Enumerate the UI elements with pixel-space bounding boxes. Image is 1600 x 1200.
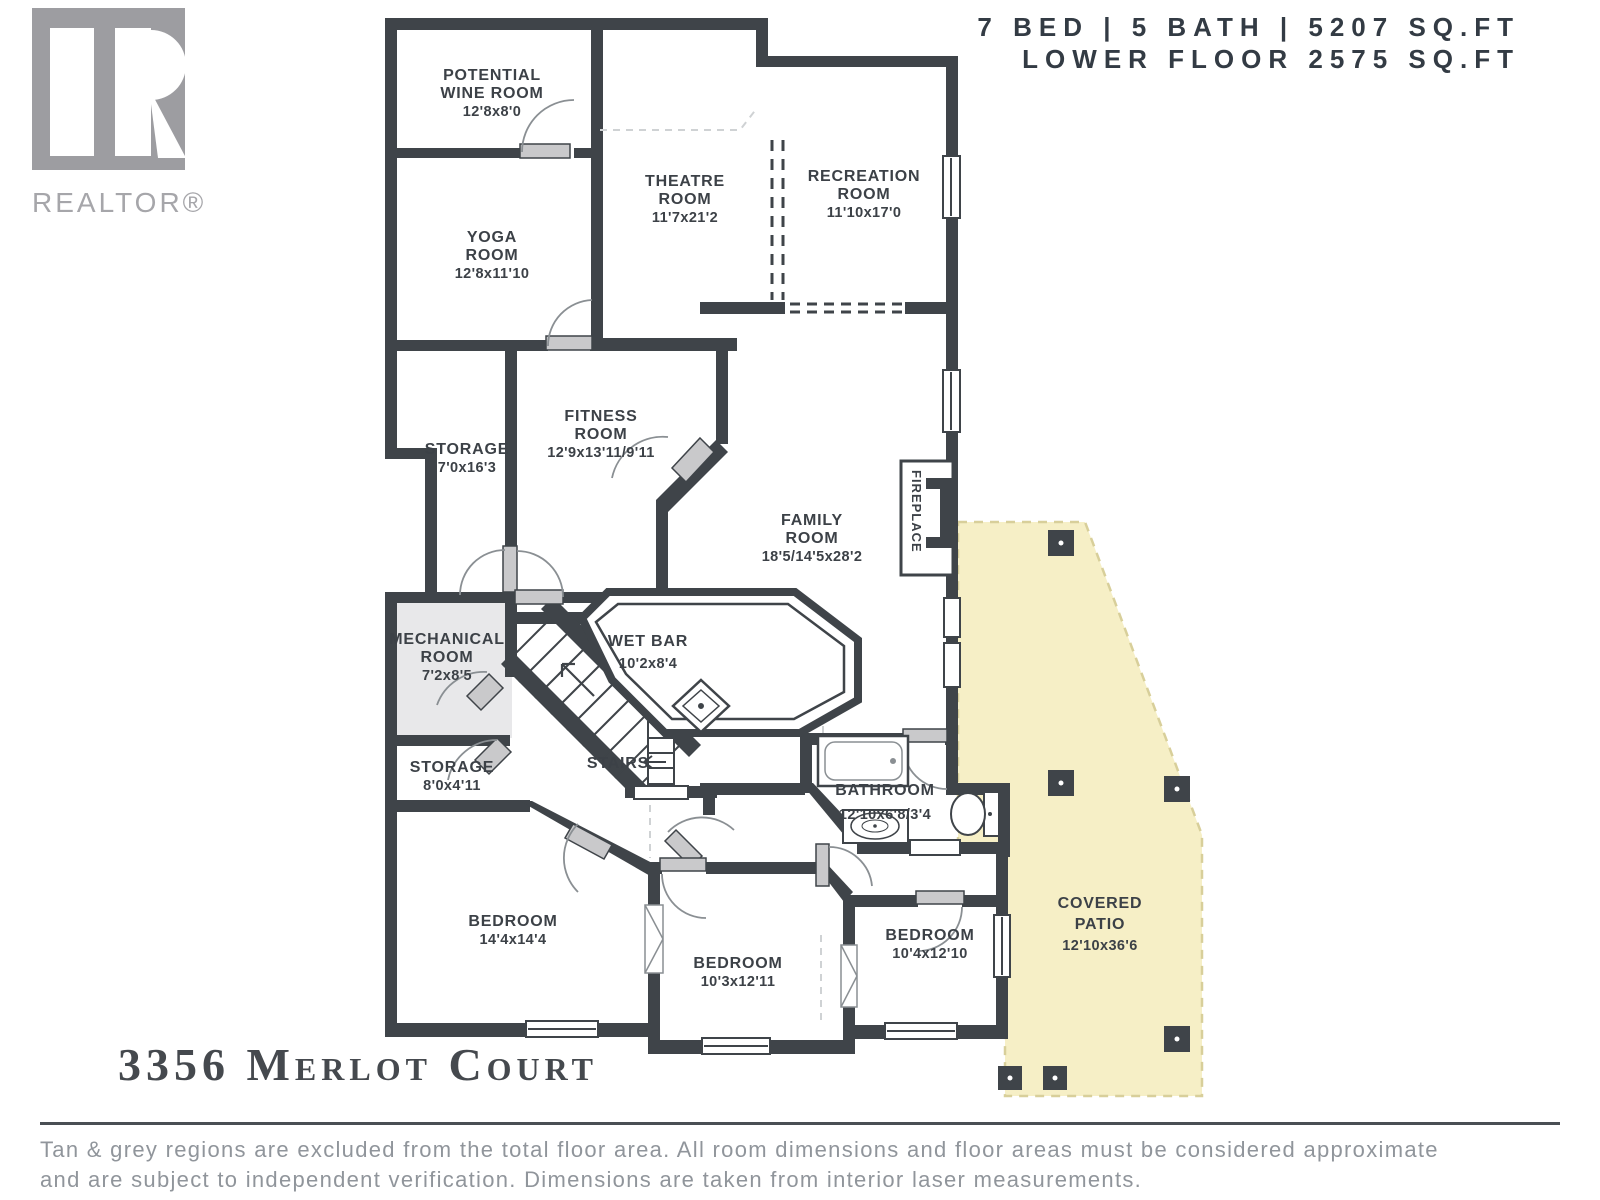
svg-text:11'7x21'2: 11'7x21'2 xyxy=(652,210,718,226)
svg-text:ROOM: ROOM xyxy=(575,426,628,443)
svg-text:12'10x36'6: 12'10x36'6 xyxy=(1062,938,1137,954)
svg-text:8'0x4'11: 8'0x4'11 xyxy=(423,778,481,794)
svg-text:12'10x6'8/3'4: 12'10x6'8/3'4 xyxy=(839,807,931,823)
room-label-bedroom-middle: BEDROOM 10'3x12'11 xyxy=(693,955,782,990)
svg-text:RECREATION: RECREATION xyxy=(808,168,921,185)
svg-text:12'8x11'10: 12'8x11'10 xyxy=(455,266,530,282)
property-address: 3356 Merlot Court xyxy=(118,1038,598,1091)
svg-text:ROOM: ROOM xyxy=(838,186,891,203)
svg-text:12'9x13'11/9'11: 12'9x13'11/9'11 xyxy=(547,445,654,461)
room-label-fitness-room: FITNESS ROOM 12'9x13'11/9'11 xyxy=(547,408,654,461)
svg-text:WET BAR: WET BAR xyxy=(608,633,688,650)
fireplace: FIREPLACE xyxy=(901,461,953,575)
svg-text:STORAGE: STORAGE xyxy=(425,441,509,458)
ceiling-dashed-lines xyxy=(600,108,823,1023)
svg-text:ROOM: ROOM xyxy=(466,247,519,264)
bathtub-icon xyxy=(818,736,908,786)
room-label-family-room: FAMILY ROOM 18'5/14'5x28'2 xyxy=(762,512,863,565)
disclaimer: Tan & grey regions are excluded from the… xyxy=(40,1122,1560,1194)
room-label-bathroom: BATHROOM 12'10x6'8/3'4 xyxy=(835,782,934,823)
svg-text:BEDROOM: BEDROOM xyxy=(885,927,974,944)
room-label-recreation-room: RECREATION ROOM 11'10x17'0 xyxy=(808,168,921,221)
svg-text:COVERED: COVERED xyxy=(1058,895,1143,912)
svg-text:MECHANICAL: MECHANICAL xyxy=(389,631,505,648)
toilet-icon xyxy=(951,792,999,836)
svg-text:BEDROOM: BEDROOM xyxy=(693,955,782,972)
svg-text:WINE ROOM: WINE ROOM xyxy=(440,85,543,102)
svg-text:10'4x12'10: 10'4x12'10 xyxy=(892,946,967,962)
room-label-potential-wine-room: POTENTIAL WINE ROOM 12'8x8'0 xyxy=(440,67,543,120)
fireplace-label: FIREPLACE xyxy=(909,470,924,553)
room-label-theatre-room: THEATRE ROOM 11'7x21'2 xyxy=(645,173,725,226)
svg-text:ROOM: ROOM xyxy=(659,191,712,208)
svg-text:BATHROOM: BATHROOM xyxy=(835,782,934,799)
svg-text:12'8x8'0: 12'8x8'0 xyxy=(463,104,521,120)
floor-plan: FIREPLACE POTENTIAL WINE ROOM 12'8x8'0 Y… xyxy=(0,0,1600,1200)
svg-text:POTENTIAL: POTENTIAL xyxy=(443,67,541,84)
svg-text:PATIO: PATIO xyxy=(1075,916,1126,933)
svg-text:11'10x17'0: 11'10x17'0 xyxy=(827,205,902,221)
room-label-storage-lower: STORAGE 8'0x4'11 xyxy=(410,759,494,794)
svg-text:STORAGE: STORAGE xyxy=(410,759,494,776)
stairs-label: STAIRS xyxy=(587,755,649,772)
svg-text:14'4x14'4: 14'4x14'4 xyxy=(480,932,547,948)
svg-text:THEATRE: THEATRE xyxy=(645,173,725,190)
svg-text:FAMILY: FAMILY xyxy=(781,512,843,529)
room-label-bedroom-right: BEDROOM 10'4x12'10 xyxy=(885,927,974,962)
dashed-openings xyxy=(772,140,905,312)
room-label-storage-upper: STORAGE 7'0x16'3 xyxy=(425,441,509,476)
svg-text:FITNESS: FITNESS xyxy=(564,408,637,425)
svg-text:7'0x16'3: 7'0x16'3 xyxy=(438,460,496,476)
svg-text:10'3x12'11: 10'3x12'11 xyxy=(701,974,776,990)
room-label-bedroom-left: BEDROOM 14'4x14'4 xyxy=(468,913,557,948)
svg-text:ROOM: ROOM xyxy=(421,649,474,666)
stairs-up-arrow xyxy=(562,664,594,696)
disclaimer-line-1: Tan & grey regions are excluded from the… xyxy=(40,1135,1560,1165)
svg-text:ROOM: ROOM xyxy=(786,530,839,547)
room-label-yoga-room: YOGA ROOM 12'8x11'10 xyxy=(455,229,530,282)
svg-text:18'5/14'5x28'2: 18'5/14'5x28'2 xyxy=(762,549,863,565)
disclaimer-line-2: and are subject to independent verificat… xyxy=(40,1165,1560,1195)
svg-text:10'2x8'4: 10'2x8'4 xyxy=(619,656,677,672)
svg-text:BEDROOM: BEDROOM xyxy=(468,913,557,930)
svg-text:YOGA: YOGA xyxy=(467,229,517,246)
svg-text:7'2x8'5: 7'2x8'5 xyxy=(422,668,472,684)
